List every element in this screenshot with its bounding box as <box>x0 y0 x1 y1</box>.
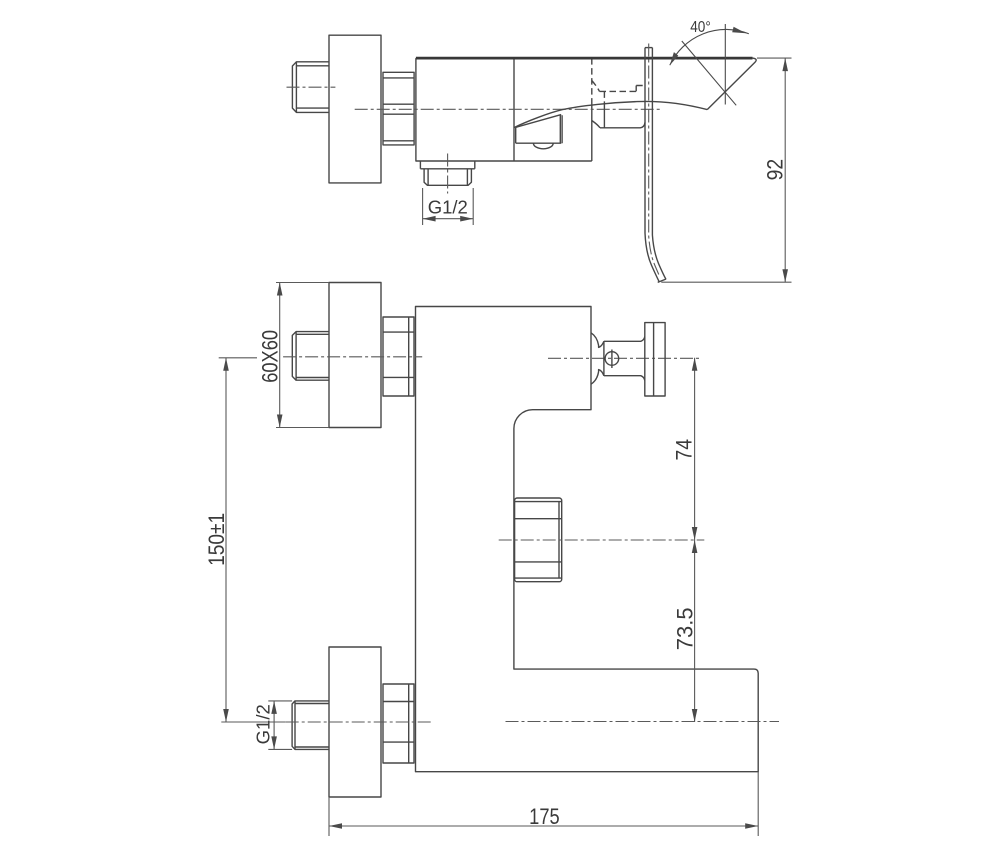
svg-text:G1/2: G1/2 <box>428 197 468 218</box>
svg-text:150±1: 150±1 <box>205 513 230 566</box>
svg-text:92: 92 <box>764 159 788 181</box>
svg-text:G1/2: G1/2 <box>253 704 274 744</box>
svg-text:73.5: 73.5 <box>672 607 697 650</box>
svg-text:40°: 40° <box>690 19 711 36</box>
svg-text:60X60: 60X60 <box>259 330 283 383</box>
svg-text:175: 175 <box>529 806 559 830</box>
svg-text:74: 74 <box>672 439 696 461</box>
